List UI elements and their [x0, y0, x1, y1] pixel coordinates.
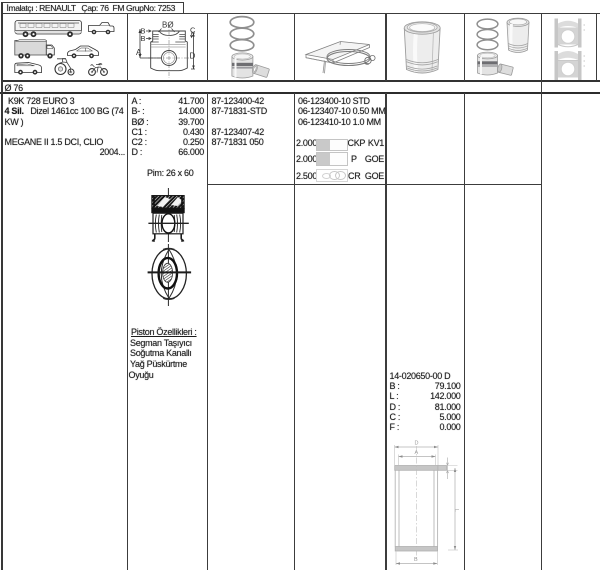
svg-text:D: D — [190, 52, 196, 61]
svg-text:D: D — [415, 441, 419, 447]
svg-text:BØ: BØ — [162, 21, 174, 30]
svg-text:L: L — [453, 509, 459, 512]
svg-text:C: C — [190, 26, 196, 35]
svg-text:B: B — [141, 34, 146, 43]
svg-text:A: A — [136, 48, 142, 57]
svg-text:B: B — [414, 557, 418, 563]
